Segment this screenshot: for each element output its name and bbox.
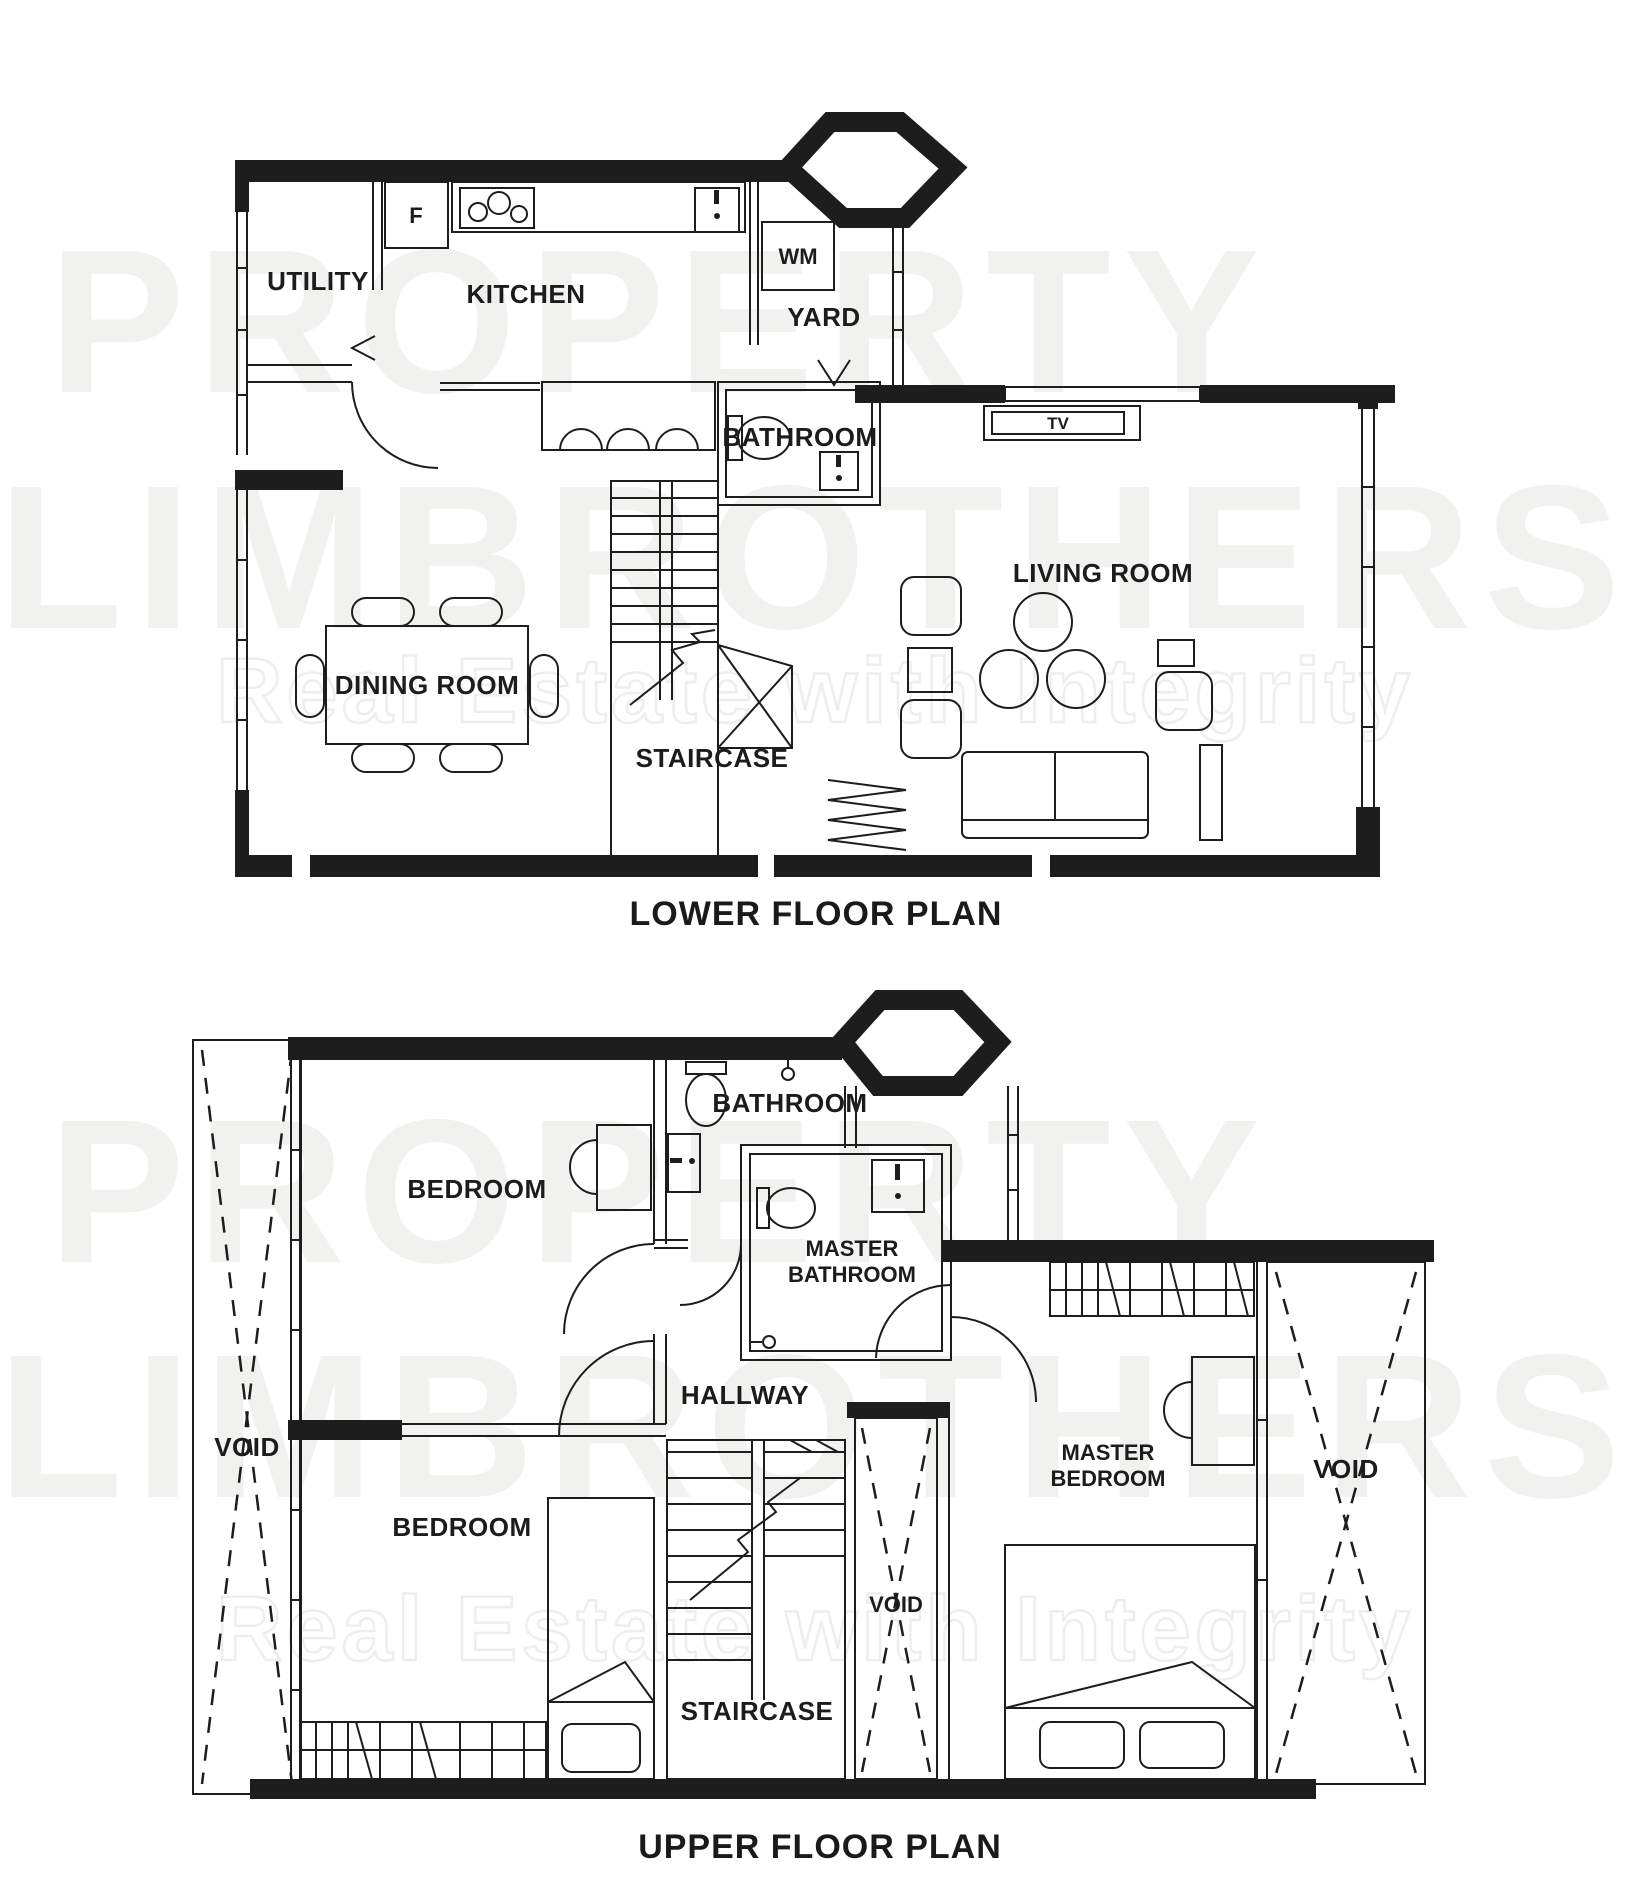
wall-bottom-upper bbox=[250, 1779, 1316, 1799]
wall-bottom bbox=[1050, 855, 1380, 877]
fridge-label: F bbox=[409, 203, 422, 228]
floorplan-page: PROPERTY LIMBROTHERS Real Estate with In… bbox=[0, 0, 1635, 1892]
bay-window-hexagon-upper bbox=[842, 1000, 998, 1086]
shoe-rack-icon bbox=[828, 780, 906, 850]
void-label: VOID bbox=[1313, 1454, 1379, 1484]
wall-utility-dining-divider bbox=[235, 470, 343, 490]
void-label: VOID bbox=[869, 1592, 923, 1617]
room-label-kitchen: KITCHEN bbox=[466, 279, 585, 309]
wall-bottom bbox=[774, 855, 1032, 877]
room-label-master-bathroom-1: MASTER bbox=[806, 1236, 899, 1261]
watermark-tagline-text: Real Estate with Integrity bbox=[216, 1578, 1414, 1680]
wall-master-top bbox=[942, 1240, 1434, 1262]
wardrobe-bedroom bbox=[300, 1722, 546, 1779]
void-label: VOID bbox=[214, 1432, 280, 1462]
watermark-upper-block: PROPERTY LIMBROTHERS Real Estate with In… bbox=[0, 1077, 1633, 1680]
room-label-staircase-upper: STAIRCASE bbox=[681, 1696, 834, 1726]
tv-label: TV bbox=[1047, 414, 1069, 433]
room-label-bedroom-top: BEDROOM bbox=[407, 1174, 546, 1204]
lower-plan-title: LOWER FLOOR PLAN bbox=[630, 895, 1003, 933]
wall-top-upper bbox=[288, 1037, 842, 1060]
room-label-master-bathroom-2: BATHROOM bbox=[788, 1262, 916, 1287]
wall-right-stub bbox=[1358, 385, 1378, 409]
wall-top bbox=[235, 160, 792, 182]
upper-plan-title: UPPER FLOOR PLAN bbox=[638, 1828, 1002, 1866]
chair-icon bbox=[352, 744, 414, 772]
pillow-icon bbox=[1040, 1722, 1124, 1768]
console-table-icon bbox=[1200, 745, 1222, 840]
room-label-staircase: STAIRCASE bbox=[636, 743, 789, 773]
toilet-icon bbox=[686, 1062, 726, 1074]
chair-icon bbox=[440, 744, 502, 772]
room-label-dining: DINING ROOM bbox=[335, 670, 520, 700]
bay-window-hexagon bbox=[788, 122, 953, 218]
watermark-property-text: PROPERTY bbox=[48, 1077, 1272, 1306]
wall-bottom bbox=[235, 855, 292, 877]
room-label-bathroom: BATHROOM bbox=[722, 422, 877, 452]
washing-machine-label: WM bbox=[778, 244, 817, 269]
room-label-master-bedroom-1: MASTER bbox=[1062, 1440, 1155, 1465]
room-label-utility: UTILITY bbox=[267, 266, 369, 296]
wall-void-top bbox=[847, 1402, 949, 1418]
room-label-living: LIVING ROOM bbox=[1013, 558, 1193, 588]
wall-right-bottom-stub bbox=[1356, 807, 1380, 877]
room-label-master-bedroom-2: BEDROOM bbox=[1051, 1466, 1166, 1491]
room-label-yard: YARD bbox=[787, 302, 860, 332]
wall-bottom bbox=[310, 855, 758, 877]
pillow-icon bbox=[1140, 1722, 1224, 1768]
wall-living-top bbox=[855, 385, 1005, 403]
pillow-icon bbox=[562, 1724, 640, 1772]
floorplan-canvas: PROPERTY LIMBROTHERS Real Estate with In… bbox=[0, 0, 1635, 1892]
wall-left-stub bbox=[235, 160, 249, 212]
wall-bedroom-divider bbox=[288, 1420, 402, 1440]
room-label-bedroom-bottom: BEDROOM bbox=[392, 1512, 531, 1542]
room-label-hallway: HALLWAY bbox=[681, 1380, 809, 1410]
